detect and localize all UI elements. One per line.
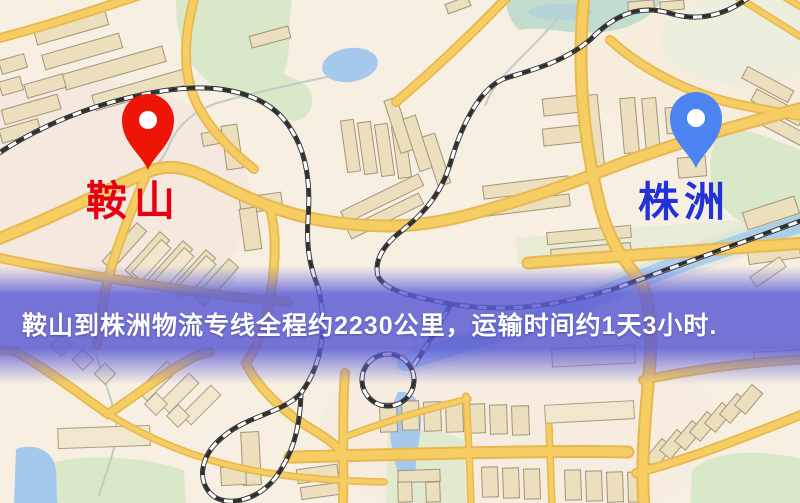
origin-pin-icon[interactable] <box>118 92 178 172</box>
origin-city-label: 鞍山 <box>86 181 182 222</box>
destination-city-label: 株洲 <box>638 182 730 223</box>
destination-pin-icon[interactable] <box>666 90 726 170</box>
map-screenshot: 鞍山到株洲物流专线全程约2230公里，运输时间约1天3小时. 鞍山 株洲 <box>0 0 800 503</box>
map-canvas[interactable] <box>0 0 800 503</box>
